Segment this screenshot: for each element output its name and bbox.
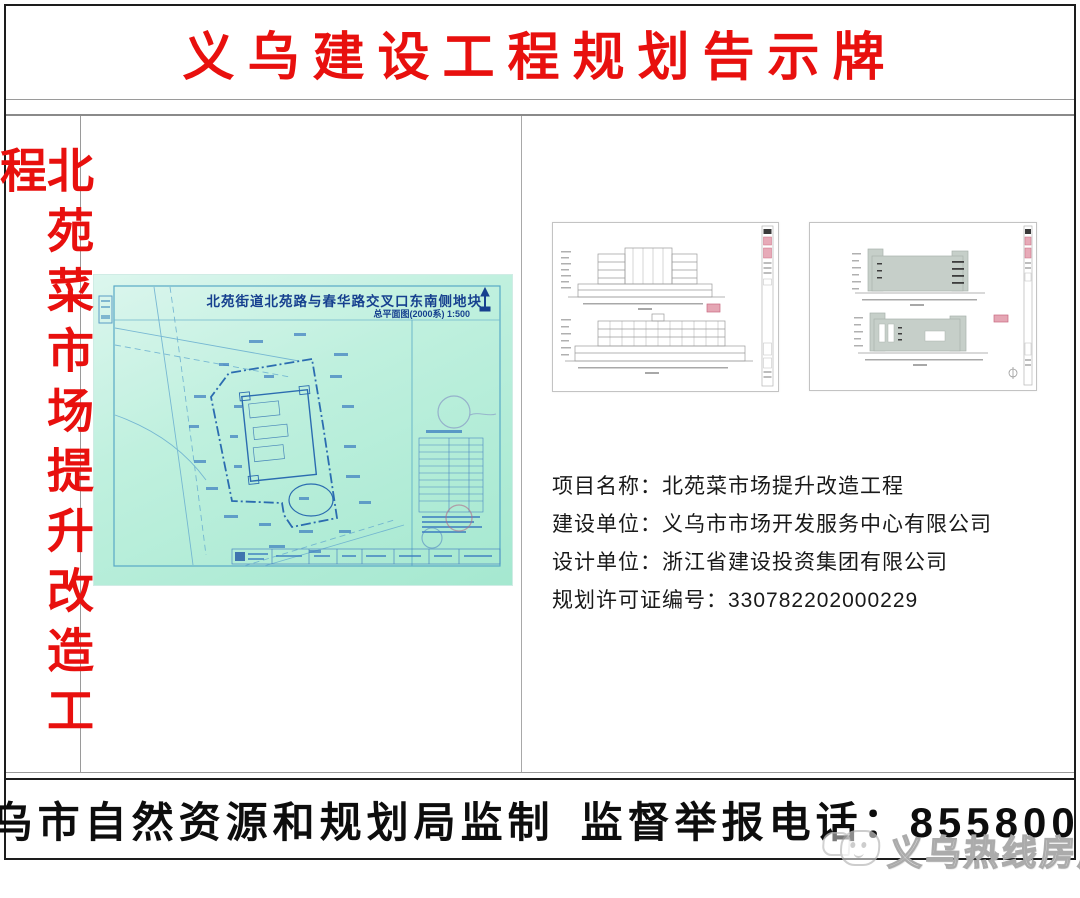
sheet1-title-block (762, 226, 773, 386)
elevation-drawing-1 (553, 223, 776, 389)
project-info-block: 项目名称：北苑菜市场提升改造工程 建设单位：义乌市市场开发服务中心有限公司 设计… (552, 468, 992, 620)
sheet2-title-block (1024, 226, 1032, 385)
elevation-drawing-2 (810, 223, 1034, 388)
board-content: 北苑菜市场提升改造工程 (6, 116, 1074, 773)
plan-indicator-table (419, 438, 483, 512)
planning-notice-board: 义乌建设工程规划告示牌 北苑菜市场提升改造工程 (4, 4, 1076, 860)
builder-line: 建设单位：义乌市市场开发服务中心有限公司 (552, 506, 992, 544)
site-plan-panel: 北苑街道北苑路与春华路交叉口东南侧地块 总平面图(2000系) 1:500 (81, 116, 522, 772)
elevation-sheet-2 (809, 222, 1037, 391)
watermark-text: 义乌热线房产 (886, 825, 1080, 876)
review-stamp (707, 304, 720, 312)
right-panel: 项目名称：北苑菜市场提升改造工程 建设单位：义乌市市场开发服务中心有限公司 设计… (522, 116, 1074, 772)
supervising-authority: 义乌市自然资源和规划局监制 (0, 789, 555, 850)
left-sidebar: 北苑菜市场提升改造工程 (6, 116, 81, 772)
designer-line: 设计单位：浙江省建设投资集团有限公司 (552, 544, 992, 582)
chat-bubbles-icon (820, 824, 890, 876)
watermark: 义乌热线房产 (820, 824, 1080, 876)
project-name-vertical: 北苑菜市场提升改造工程 (0, 146, 90, 772)
permit-number-line: 规划许可证编号：330782202000229 (552, 582, 992, 620)
plan-seal-stamps (422, 396, 496, 548)
site-plan-subtitle: 总平面图(2000系) 1:500 (373, 307, 470, 320)
site-plan-blueprint: 北苑街道北苑路与春华路交叉口东南侧地块 总平面图(2000系) 1:500 (94, 275, 512, 585)
board-title: 义乌建设工程规划告示牌 (182, 15, 897, 90)
board-header: 义乌建设工程规划告示牌 (6, 6, 1074, 100)
review-stamp (994, 315, 1008, 322)
header-divider-band (6, 100, 1074, 116)
site-plan-drawing (94, 275, 512, 585)
elevation-sheet-1 (552, 222, 779, 392)
project-name-line: 项目名称：北苑菜市场提升改造工程 (552, 468, 992, 506)
